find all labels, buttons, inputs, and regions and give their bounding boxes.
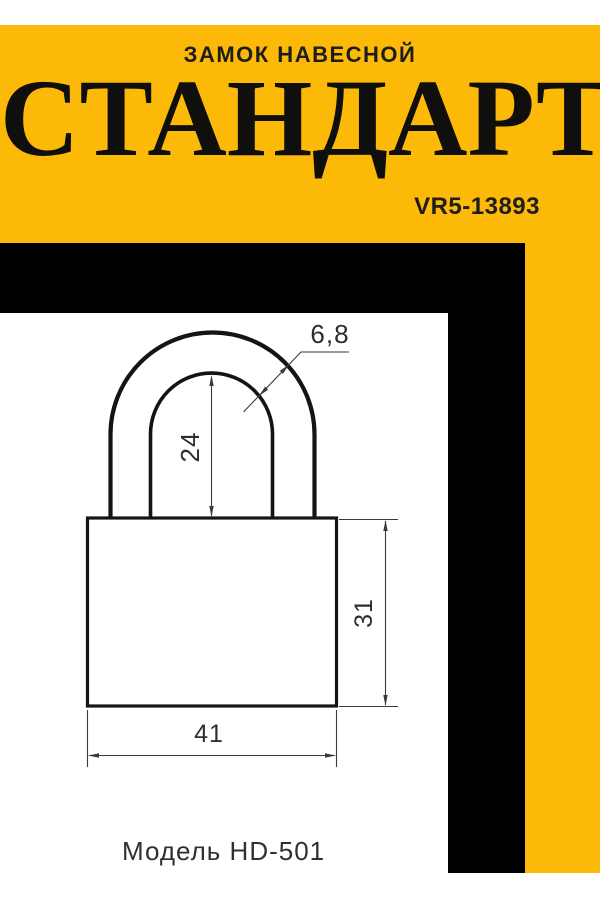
shackle-outer-path — [111, 333, 315, 519]
dim-24-arrow-down — [209, 506, 213, 517]
dim-41-label: 41 — [194, 720, 224, 748]
model-label: Модель HD-501 — [122, 836, 325, 867]
dim-31-arrow-up — [383, 520, 387, 531]
dim-31-arrow-down — [383, 695, 387, 706]
dimension-31: 31 — [339, 520, 398, 707]
dim-41-arrow-left — [88, 753, 99, 757]
dim-68-leader — [244, 352, 350, 412]
dim-24-arrow-up — [209, 375, 213, 386]
padlock-technical-drawing: 24 31 41 6,8 — [0, 0, 600, 900]
dimension-41: 41 — [88, 710, 337, 767]
dimension-24: 24 — [175, 375, 214, 517]
dim-24-label: 24 — [175, 432, 205, 463]
dim-41-arrow-right — [325, 753, 336, 757]
dim-68-label: 6,8 — [310, 319, 349, 349]
label-page: ЗАМОК НАВЕСНОЙ СТАНДАРТ VR5-13893 24 31 — [0, 0, 600, 900]
padlock-body — [88, 518, 337, 706]
dim-31-label: 31 — [350, 598, 378, 628]
padlock-shackle — [111, 333, 315, 519]
